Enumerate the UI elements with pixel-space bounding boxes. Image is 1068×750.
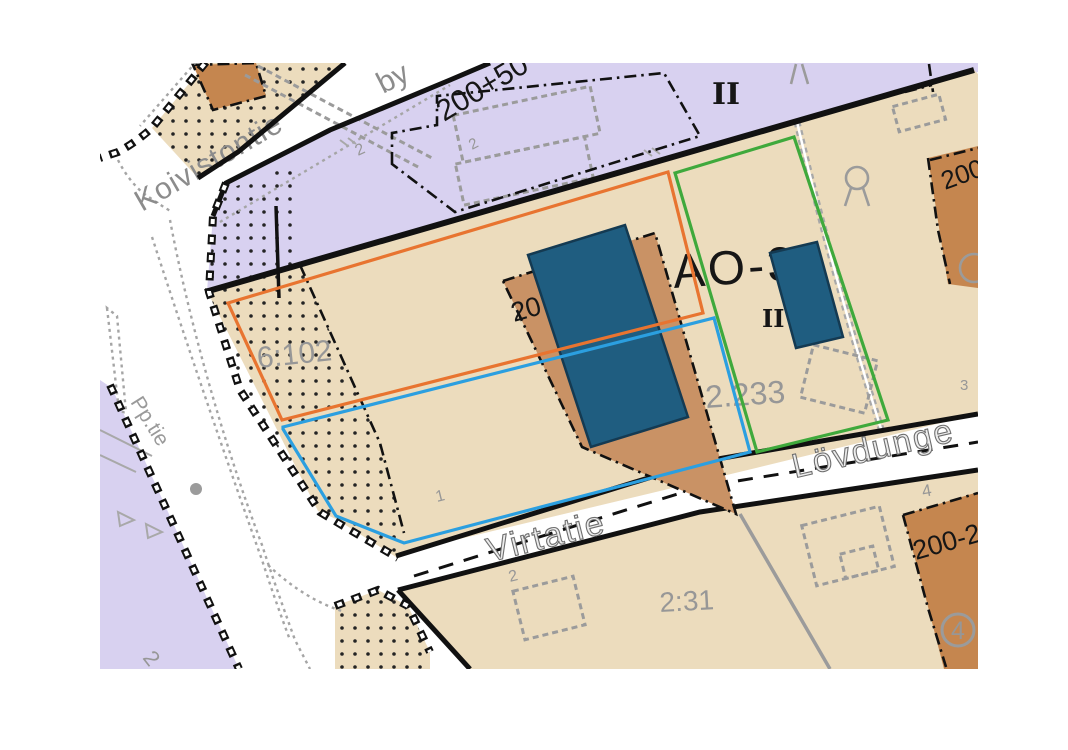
map-canvas[interactable]: Koivistontie by 200+50 II AO-36 II 2.233…: [0, 0, 1068, 750]
map-screenshot: Koivistontie by 200+50 II AO-36 II 2.233…: [0, 0, 1068, 750]
storeys-small: II: [762, 304, 784, 333]
parcel-231: 2:31: [659, 584, 715, 618]
circled-number-4-text: 4: [951, 617, 965, 645]
storeys-top: II: [712, 77, 740, 112]
small-number-3: 3: [960, 377, 968, 394]
road-dot-symbol: [190, 483, 202, 495]
